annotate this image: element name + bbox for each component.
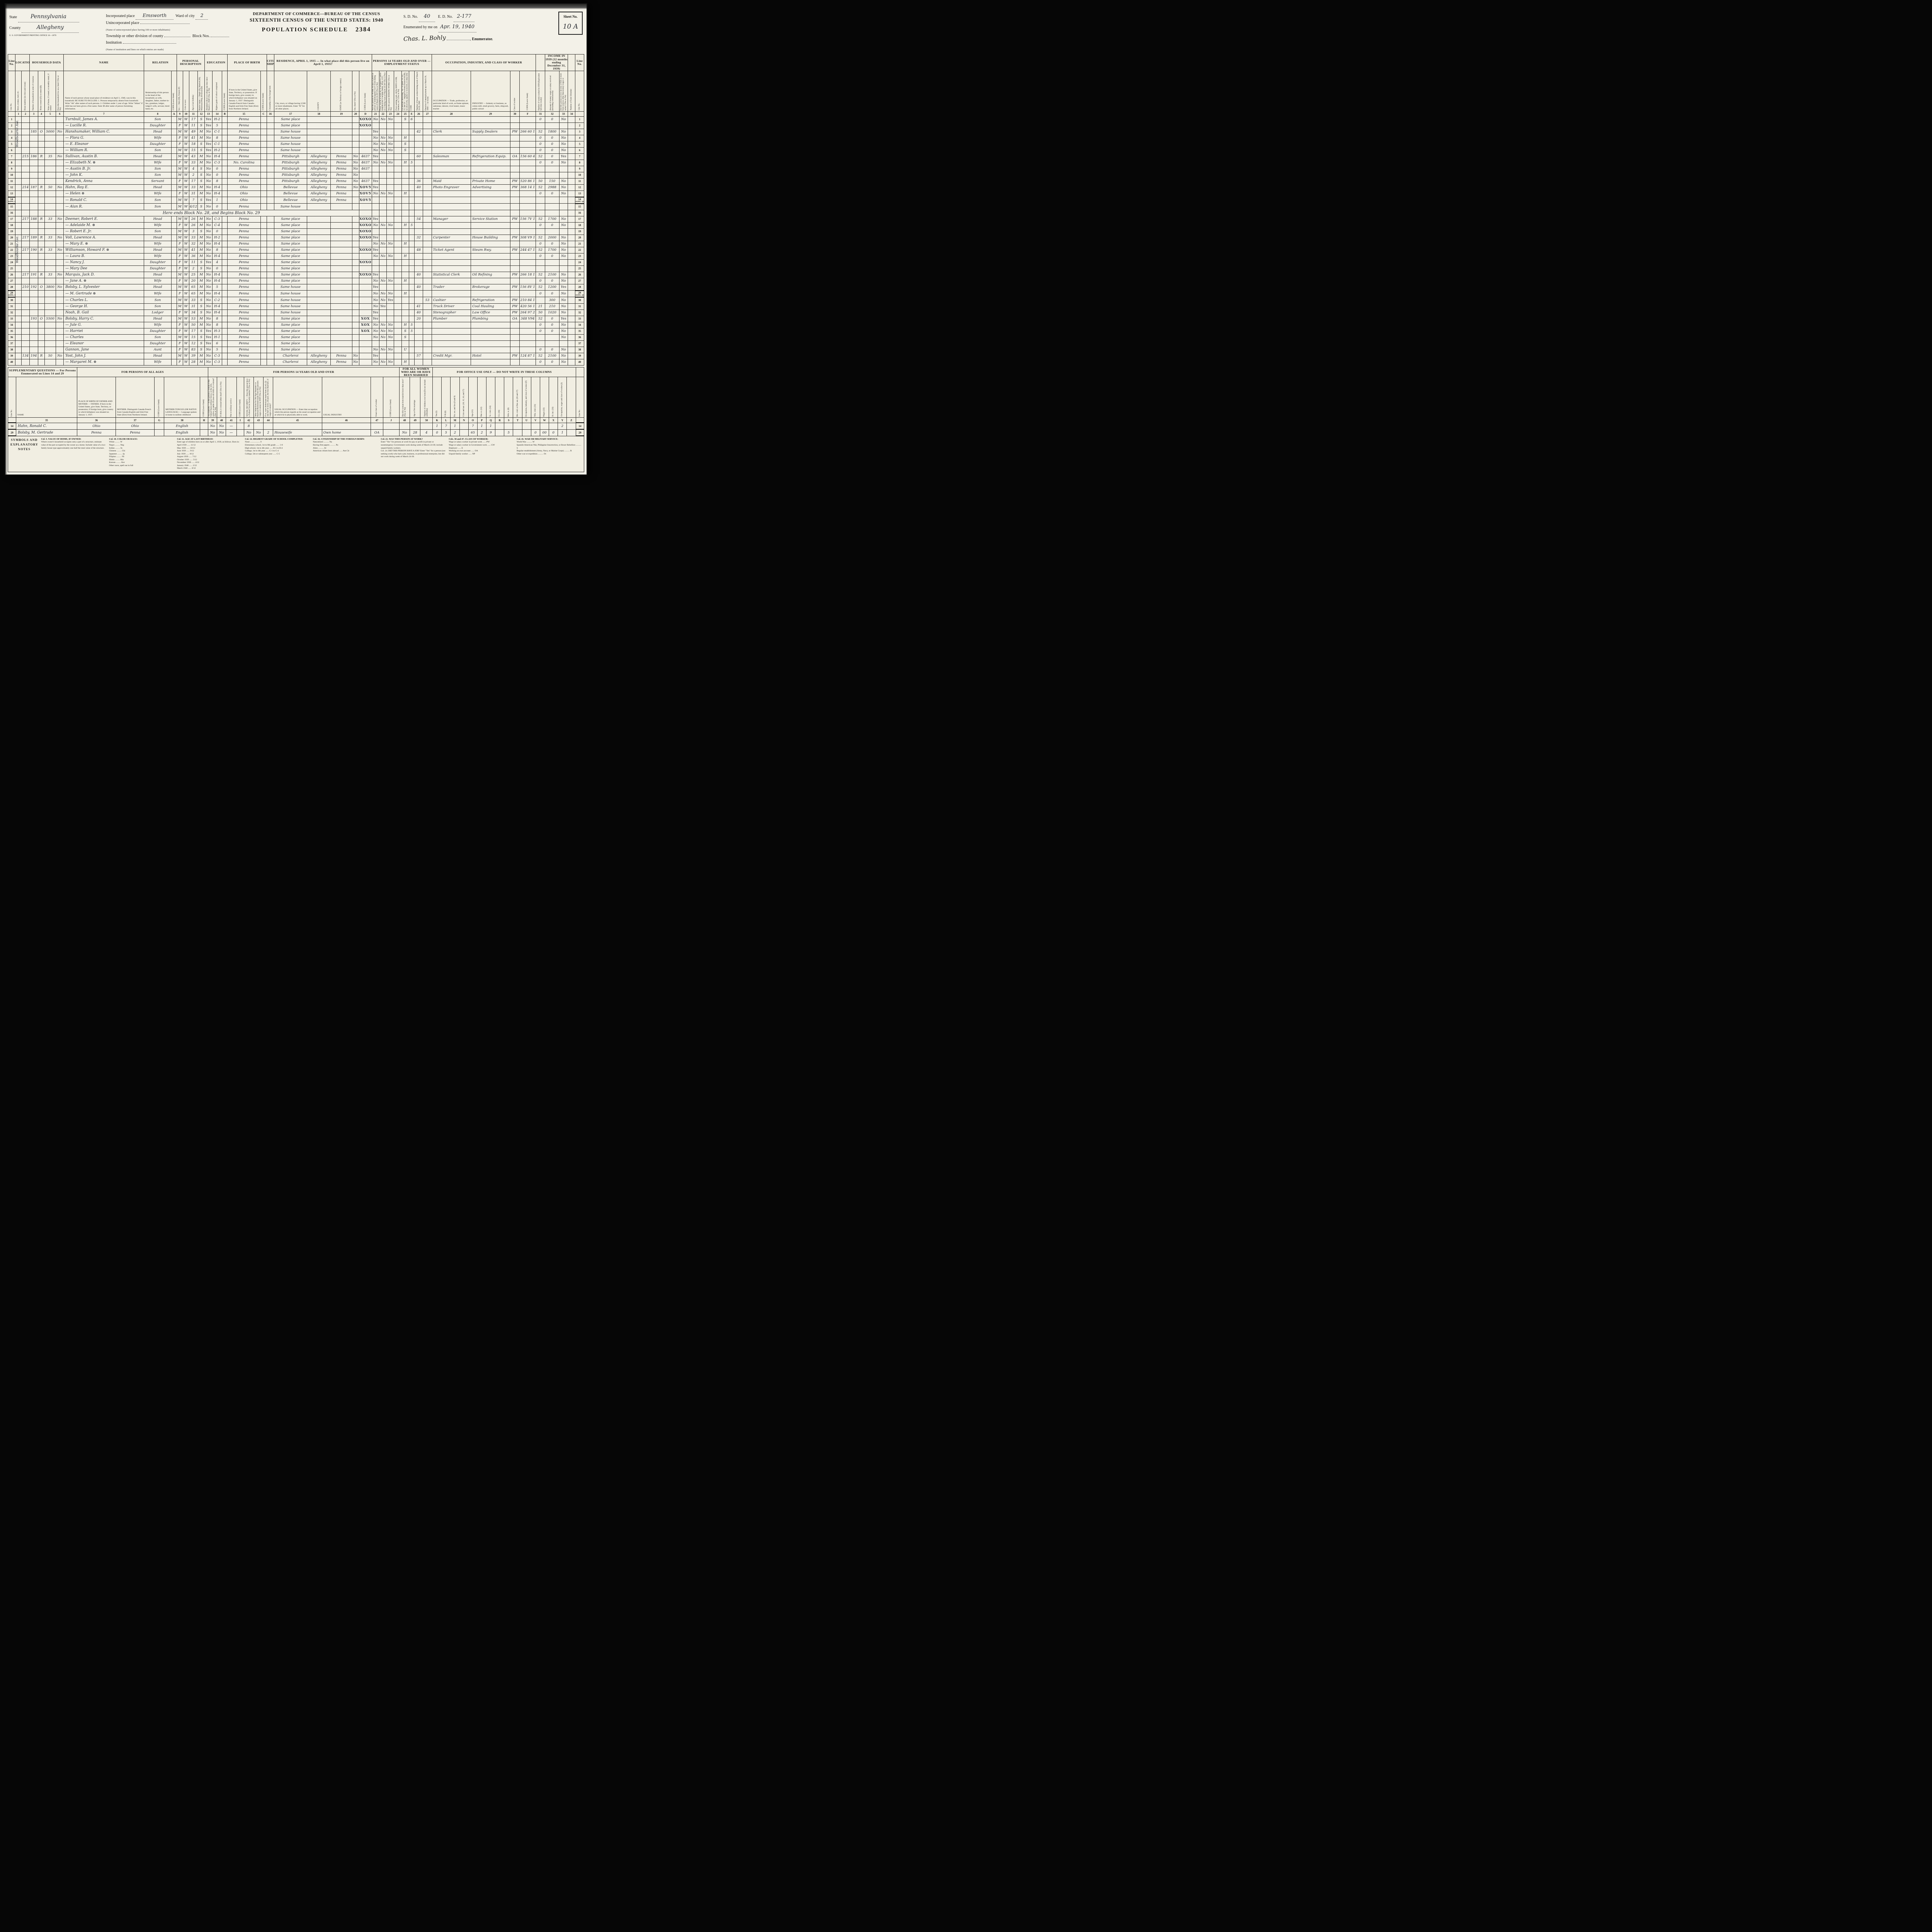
table-cell: Penna: [228, 153, 260, 160]
line-number: 23: [8, 253, 15, 259]
table-cell: PW: [510, 178, 520, 184]
table-cell: No: [205, 235, 212, 241]
table-cell: Allegheny: [307, 178, 331, 184]
column-number: 17: [274, 111, 307, 116]
table-cell: [15, 310, 22, 316]
table-cell: [15, 303, 22, 310]
table-cell: M: [198, 316, 205, 322]
department-title: DEPARTMENT OF COMMERCE—BUREAU OF THE CEN…: [233, 12, 400, 16]
table-cell: [372, 122, 379, 129]
column-number: Z: [567, 418, 576, 423]
table-cell: [568, 210, 575, 216]
table-cell: Charleroi: [274, 353, 307, 359]
table-cell: No: [387, 222, 394, 228]
table-cell: [352, 216, 359, 222]
table-cell: [38, 197, 44, 204]
table-cell: 50: [45, 353, 56, 359]
table-cell: 2: [558, 423, 567, 429]
table-cell: [331, 328, 352, 334]
table-cell: [222, 166, 228, 172]
table-cell: Housewife: [273, 429, 322, 436]
table-cell: 2: [477, 429, 486, 436]
column-description: Value of home, if owned, or monthly rent…: [45, 71, 56, 111]
table-cell: Same house: [274, 284, 307, 291]
table-cell: PW: [510, 247, 520, 253]
table-cell: [471, 135, 510, 141]
table-cell: Allegheny: [307, 153, 331, 160]
table-cell: Penna: [228, 172, 260, 178]
table-cell: [414, 172, 423, 178]
table-cell: No: [559, 147, 568, 153]
column-number: 46: [322, 418, 371, 423]
table-cell: Yes: [372, 272, 379, 278]
table-cell: — M. Gertrude ⊗: [64, 291, 144, 297]
table-cell: [22, 160, 29, 166]
table-cell: [379, 259, 387, 265]
gpo-imprint: U. S. GOVERNMENT PRINTING OFFICE 16—1870: [9, 34, 106, 37]
table-cell: S: [198, 228, 205, 235]
table-cell: [22, 204, 29, 210]
table-cell: [45, 322, 56, 328]
table-cell: 217: [22, 235, 29, 241]
block-nos-label: Block Nos.: [192, 34, 210, 38]
table-cell: [222, 334, 228, 340]
table-cell: [394, 204, 401, 210]
table-cell: [401, 310, 409, 316]
table-cell: Wife: [144, 241, 171, 247]
table-cell: [236, 423, 244, 429]
table-cell: No: [379, 359, 387, 365]
table-cell: [414, 204, 423, 210]
table-cell: Yes: [205, 340, 212, 347]
table-cell: No: [559, 116, 568, 122]
table-cell: [387, 122, 394, 129]
table-cell: [394, 340, 401, 347]
column-number: Q: [486, 418, 495, 423]
table-cell: 0: [536, 116, 545, 122]
table-cell: [45, 122, 56, 129]
table-cell: [471, 222, 510, 228]
table-cell: OA: [510, 316, 520, 322]
table-cell: [536, 340, 545, 347]
column-number: N: [459, 418, 468, 423]
table-cell: [352, 334, 359, 340]
table-cell: 34: [189, 310, 197, 316]
table-cell: [414, 347, 423, 353]
table-cell: [414, 228, 423, 235]
table-cell: [171, 334, 177, 340]
table-cell: [394, 316, 401, 322]
table-cell: M: [177, 147, 183, 153]
table-cell: [409, 197, 414, 204]
table-cell: [545, 204, 559, 210]
table-cell: 0: [536, 278, 545, 284]
table-cell: S: [198, 297, 205, 304]
table-cell: [222, 116, 228, 122]
table-cell: 1: [558, 429, 567, 436]
table-cell: [559, 204, 568, 210]
table-cell: [222, 278, 228, 284]
table-cell: [307, 228, 331, 235]
table-cell: Same place: [274, 228, 307, 235]
table-cell: 156 60 4: [520, 153, 536, 160]
table-cell: F: [177, 122, 183, 129]
table-cell: [267, 334, 274, 340]
table-cell: No: [372, 303, 379, 310]
table-cell: 52: [536, 235, 545, 241]
table-cell: [22, 210, 29, 216]
table-cell: 40: [414, 310, 423, 316]
table-cell: [359, 291, 372, 297]
table-cell: [471, 340, 510, 347]
table-cell: No: [56, 247, 63, 253]
table-cell: [495, 423, 504, 429]
table-cell: [200, 429, 208, 436]
table-cell: [267, 235, 274, 241]
table-cell: [260, 353, 267, 359]
table-cell: W: [183, 297, 189, 304]
table-cell: [307, 222, 331, 228]
table-cell: 42: [414, 129, 423, 135]
table-cell: [56, 141, 63, 147]
table-cell: Wife: [144, 190, 171, 197]
legend-line: July 1939 ...... 8/12: [177, 453, 242, 456]
table-cell: [471, 265, 510, 272]
table-cell: [222, 135, 228, 141]
table-cell: [394, 322, 401, 328]
ward-value: 2: [196, 12, 208, 20]
table-cell: Penna: [228, 303, 260, 310]
table-cell: [387, 272, 394, 278]
sheet-no-label: Sheet No.: [563, 13, 578, 20]
table-cell: [387, 197, 394, 204]
table-cell: No: [205, 190, 212, 197]
column-number: 10: [183, 111, 189, 116]
legend-block: Col. 16. CITIZENSHIP OF THE FOREIGN BORN…: [313, 438, 378, 470]
table-cell: [401, 178, 409, 184]
table-cell: No: [205, 347, 212, 353]
line-number: 28: [575, 284, 584, 291]
column-description: If so, were deductions made from (1) all…: [264, 377, 273, 418]
table-cell: C-3: [212, 216, 222, 222]
table-cell: [536, 265, 545, 272]
column-number: 30: [510, 111, 520, 116]
table-cell: [459, 429, 468, 436]
table-cell: [510, 147, 520, 153]
table-cell: [568, 235, 575, 241]
table-cell: Son: [144, 303, 171, 310]
table-cell: [222, 147, 228, 153]
table-cell: [29, 322, 38, 328]
table-cell: [171, 259, 177, 265]
line-number: 31: [8, 303, 15, 310]
table-cell: Same place: [274, 259, 307, 265]
table-cell: [45, 166, 56, 172]
header-state-county: State Pennsylvania County Allegheny U. S…: [9, 12, 106, 38]
table-cell: [409, 278, 414, 284]
column-description: Highest grade of school completed: [212, 71, 222, 111]
table-cell: [22, 265, 29, 272]
table-cell: [394, 247, 401, 253]
table-cell: [222, 316, 228, 322]
column-description: Did this person receive income of $50 or…: [559, 71, 568, 111]
column-group: FOR ALL WOMEN WHO ARE OR HAVE BEEN MARRI…: [399, 367, 432, 377]
table-cell: M: [198, 160, 205, 166]
table-cell: No: [352, 166, 359, 172]
table-cell: 36: [414, 178, 423, 184]
table-cell: M: [198, 353, 205, 359]
table-cell: — Nancy J.: [64, 259, 144, 265]
column-description: On a farm? (Yes or No): [352, 71, 359, 111]
table-cell: Penna: [228, 216, 260, 222]
table-cell: W: [183, 116, 189, 122]
table-cell: W: [183, 228, 189, 235]
table-cell: [568, 334, 575, 340]
table-cell: — William R.: [64, 147, 144, 153]
line-number: 3: [575, 129, 584, 135]
table-cell: [471, 253, 510, 259]
table-cell: [15, 172, 22, 178]
table-cell: [56, 228, 63, 235]
table-cell: 0: [536, 322, 545, 328]
table-cell: [359, 334, 372, 340]
table-cell: Refrigeration: [471, 297, 510, 304]
table-cell: [394, 141, 401, 147]
person-row: 2— Lucille R.DaughterFW11SYes5PennaSame …: [8, 122, 584, 129]
supplementary-row: 29Bolsby, M. GertrudePennaPennaEnglishNo…: [8, 429, 584, 436]
table-cell: [432, 340, 471, 347]
table-cell: 7: [442, 423, 451, 429]
table-cell: 33: [45, 235, 56, 241]
table-cell: Daughter: [144, 265, 171, 272]
table-cell: XOXO: [359, 235, 372, 241]
table-cell: [520, 160, 536, 166]
table-cell: C-3: [212, 160, 222, 166]
table-cell: [387, 166, 394, 172]
table-cell: 0: [545, 241, 559, 247]
table-cell: No: [379, 116, 387, 122]
table-cell: [399, 423, 410, 429]
table-cell: [260, 284, 267, 291]
table-cell: [38, 297, 44, 304]
table-cell: Same house: [274, 303, 307, 310]
table-cell: 0: [536, 253, 545, 259]
line-number: 5: [575, 141, 584, 147]
line-number: 20: [8, 235, 15, 241]
line-number: 21: [575, 241, 584, 247]
table-cell: [29, 210, 38, 216]
table-cell: H: [401, 190, 409, 197]
table-cell: [45, 141, 56, 147]
table-cell: Service Station: [471, 216, 510, 222]
table-cell: [568, 316, 575, 322]
table-cell: [15, 340, 22, 347]
table-cell: Same house: [274, 297, 307, 304]
table-cell: H: [401, 291, 409, 297]
table-cell: H-2: [212, 147, 222, 153]
table-cell: Statistical Clerk: [432, 272, 471, 278]
institution-label: Institution: [106, 41, 122, 45]
table-cell: [432, 222, 471, 228]
table-cell: Lodger: [144, 310, 171, 316]
table-cell: [15, 166, 22, 172]
table-cell: Head: [144, 353, 171, 359]
table-cell: Same place: [274, 253, 307, 259]
table-cell: [267, 172, 274, 178]
line-number: 5: [8, 141, 15, 147]
table-cell: [331, 222, 352, 228]
table-cell: Hotel: [471, 353, 510, 359]
table-cell: Kendrick, Anna: [64, 178, 144, 184]
column-description: Marital status — Single (S), Married (M)…: [198, 71, 205, 111]
street-name: Woodbourne Ave.: [15, 120, 19, 147]
table-cell: Daughter: [144, 340, 171, 347]
table-cell: [267, 178, 274, 184]
column-description: Does this household live on a farm? (Yes…: [56, 71, 63, 111]
table-cell: 65: [189, 284, 197, 291]
table-cell: [260, 166, 267, 172]
table-cell: [260, 340, 267, 347]
table-cell: 0: [545, 347, 559, 353]
table-cell: [414, 160, 423, 166]
table-cell: M: [198, 322, 205, 328]
table-cell: [423, 228, 432, 235]
table-cell: Yes: [372, 129, 379, 135]
table-cell: [510, 265, 520, 272]
table-cell: [15, 190, 22, 197]
table-cell: Private Home: [471, 178, 510, 184]
table-cell: Penna: [228, 241, 260, 247]
table-cell: [520, 210, 536, 216]
table-cell: M: [177, 247, 183, 253]
table-cell: [253, 423, 263, 429]
table-cell: Yes: [205, 334, 212, 340]
table-cell: [394, 347, 401, 353]
column-number: 34: [568, 111, 575, 116]
table-cell: H-1: [212, 334, 222, 340]
table-cell: H-4: [212, 184, 222, 190]
table-cell: [401, 216, 409, 222]
table-cell: No: [387, 135, 394, 141]
table-cell: [260, 172, 267, 178]
table-cell: [171, 129, 177, 135]
table-cell: 54: [414, 216, 423, 222]
table-cell: 4: [212, 259, 222, 265]
table-cell: [307, 147, 331, 153]
table-cell: No: [372, 328, 379, 334]
table-cell: — Jane A. ⊗: [64, 278, 144, 284]
table-cell: [222, 284, 228, 291]
table-cell: No: [205, 253, 212, 259]
table-cell: [56, 204, 63, 210]
table-cell: [15, 291, 22, 297]
table-cell: 41: [414, 303, 423, 310]
column-description: Ot. inc. (33): [549, 377, 558, 418]
table-cell: 0: [531, 429, 540, 436]
table-cell: 156 7V 1: [520, 216, 536, 222]
table-cell: [171, 328, 177, 334]
table-cell: 48: [414, 247, 423, 253]
table-cell: 5: [442, 429, 451, 436]
table-cell: 264 97 2: [520, 310, 536, 316]
table-cell: [15, 222, 22, 228]
table-cell: XOXO: [359, 216, 372, 222]
table-cell: No: [372, 222, 379, 228]
table-cell: [15, 204, 22, 210]
table-cell: [536, 334, 545, 340]
column-description: CODE (Leave blank): [222, 71, 228, 111]
person-row: 13— Helen ⊗WifeFW31MNoH-4OhioBellevueAll…: [8, 190, 584, 197]
table-cell: F: [177, 253, 183, 259]
legend-title: Col. 16. CITIZENSHIP OF THE FOREIGN BORN…: [313, 438, 378, 441]
table-cell: PW: [510, 272, 520, 278]
table-cell: M: [198, 129, 205, 135]
table-cell: Penna: [331, 353, 352, 359]
column-number: [576, 418, 584, 423]
table-cell: [307, 316, 331, 322]
table-cell: W: [183, 291, 189, 297]
legend-block: Cols. 30 and 47. CLASS OF WORKER:Wage or…: [449, 438, 514, 470]
table-cell: [394, 328, 401, 334]
table-cell: [536, 172, 545, 178]
table-cell: [171, 172, 177, 178]
table-cell: Ticket Agent: [432, 247, 471, 253]
table-cell: Charleroi: [274, 359, 307, 365]
person-row: 19— Robert E. Jr.SonMW3SNo0PennaSame pla…: [8, 228, 584, 235]
column-description: Number of children ever born (Do not inc…: [420, 377, 433, 418]
table-cell: [394, 359, 401, 365]
table-cell: — Charles L.: [64, 297, 144, 304]
table-cell: No: [559, 272, 568, 278]
person-row: 35— HarrietDaughterFW17SYesH-3PennaSame …: [8, 328, 584, 334]
table-cell: No: [387, 347, 394, 353]
table-cell: 1: [486, 423, 495, 429]
table-cell: Penna: [331, 197, 352, 204]
table-cell: [307, 347, 331, 353]
table-cell: [264, 423, 273, 429]
table-cell: [423, 235, 432, 241]
table-cell: W: [183, 316, 189, 322]
table-cell: W: [183, 303, 189, 310]
table-cell: 8: [212, 178, 222, 184]
column-number: 11: [189, 111, 197, 116]
table-cell: Same house: [274, 147, 307, 153]
table-cell: Cashier: [432, 297, 471, 304]
table-cell: [15, 284, 22, 291]
county-value: Allegheny: [22, 22, 79, 33]
table-cell: [267, 204, 274, 210]
table-cell: [171, 153, 177, 160]
table-cell: [45, 204, 56, 210]
table-cell: [171, 160, 177, 166]
table-cell: [222, 129, 228, 135]
table-cell: [568, 253, 575, 259]
table-cell: [260, 135, 267, 141]
table-cell: [471, 160, 510, 166]
table-cell: 0: [536, 135, 545, 141]
table-cell: [29, 291, 38, 297]
table-cell: No: [205, 353, 212, 359]
table-cell: Pittsburgh: [274, 172, 307, 178]
table-cell: 33: [45, 247, 56, 253]
table-cell: Same house: [274, 291, 307, 297]
table-cell: [171, 247, 177, 253]
table-cell: [222, 297, 228, 304]
table-cell: [414, 291, 423, 297]
table-cell: [22, 303, 29, 310]
column-number: S: [504, 418, 513, 423]
column-description: Attended school or college any time sinc…: [205, 71, 212, 111]
